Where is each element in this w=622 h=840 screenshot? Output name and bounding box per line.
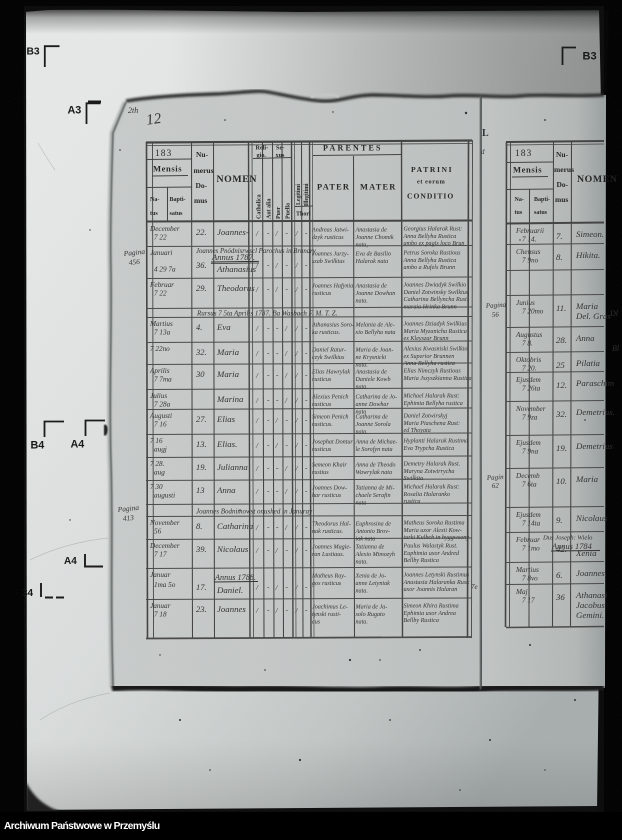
- svg-text:Archiwum Państwowe w Przemyślu: Archiwum Państwowe w Przemyślu: [4, 821, 160, 832]
- svg-text:Bl: Bl: [612, 344, 620, 353]
- svg-text:Dl: Dl: [609, 309, 619, 318]
